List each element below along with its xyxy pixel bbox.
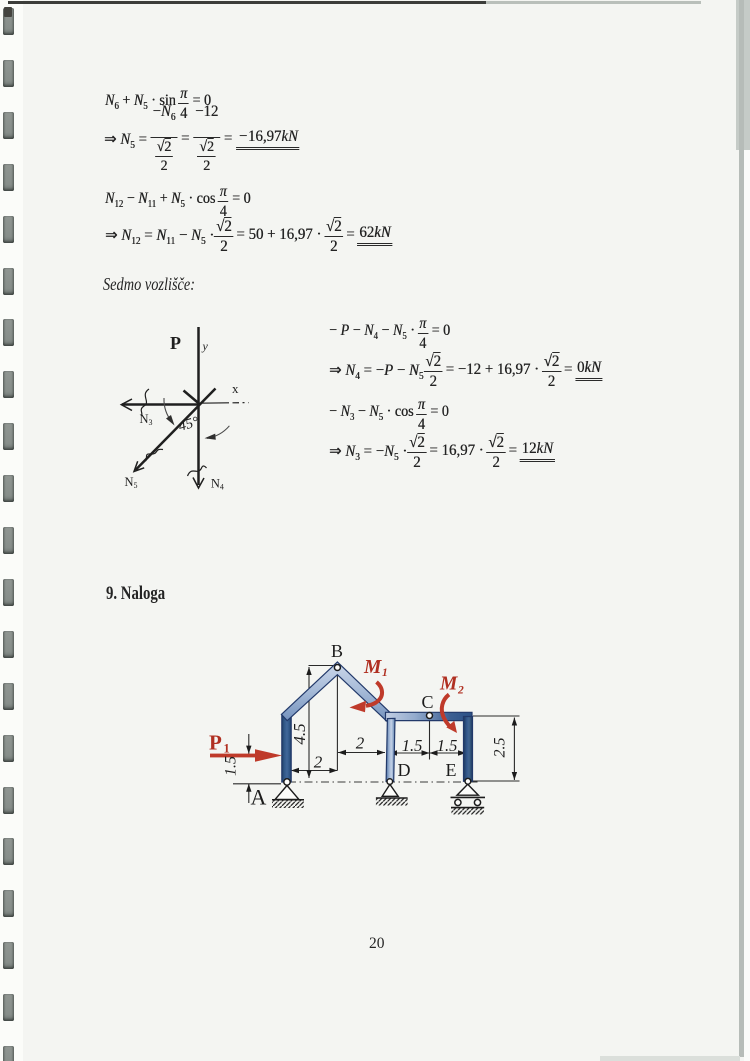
svg-text:2: 2 (356, 734, 365, 753)
svg-text:N4: N4 (211, 477, 224, 492)
svg-text:P: P (209, 731, 222, 755)
svg-text:4.5: 4.5 (290, 723, 309, 744)
svg-text:1: 1 (382, 667, 388, 679)
svg-text:C: C (422, 692, 434, 712)
svg-text:y: y (202, 339, 209, 353)
svg-text:x: x (232, 381, 239, 396)
svg-text:N3: N3 (140, 412, 153, 427)
svg-text:1.5: 1.5 (437, 736, 458, 755)
svg-text:N5: N5 (125, 475, 138, 490)
svg-text:P: P (170, 333, 181, 353)
svg-text:1.5: 1.5 (223, 756, 240, 776)
svg-text:D: D (398, 760, 411, 780)
svg-text:A: A (251, 785, 267, 810)
svg-text:2.5: 2.5 (492, 738, 509, 758)
svg-text:M: M (439, 674, 458, 695)
svg-text:2: 2 (314, 753, 323, 772)
svg-text:2: 2 (457, 685, 464, 697)
svg-text:1: 1 (224, 742, 230, 756)
svg-text:B: B (331, 641, 343, 661)
svg-text:M: M (363, 657, 382, 678)
svg-text:1.5: 1.5 (402, 736, 423, 755)
svg-text:45°: 45° (177, 414, 201, 435)
svg-text:E: E (446, 760, 457, 780)
